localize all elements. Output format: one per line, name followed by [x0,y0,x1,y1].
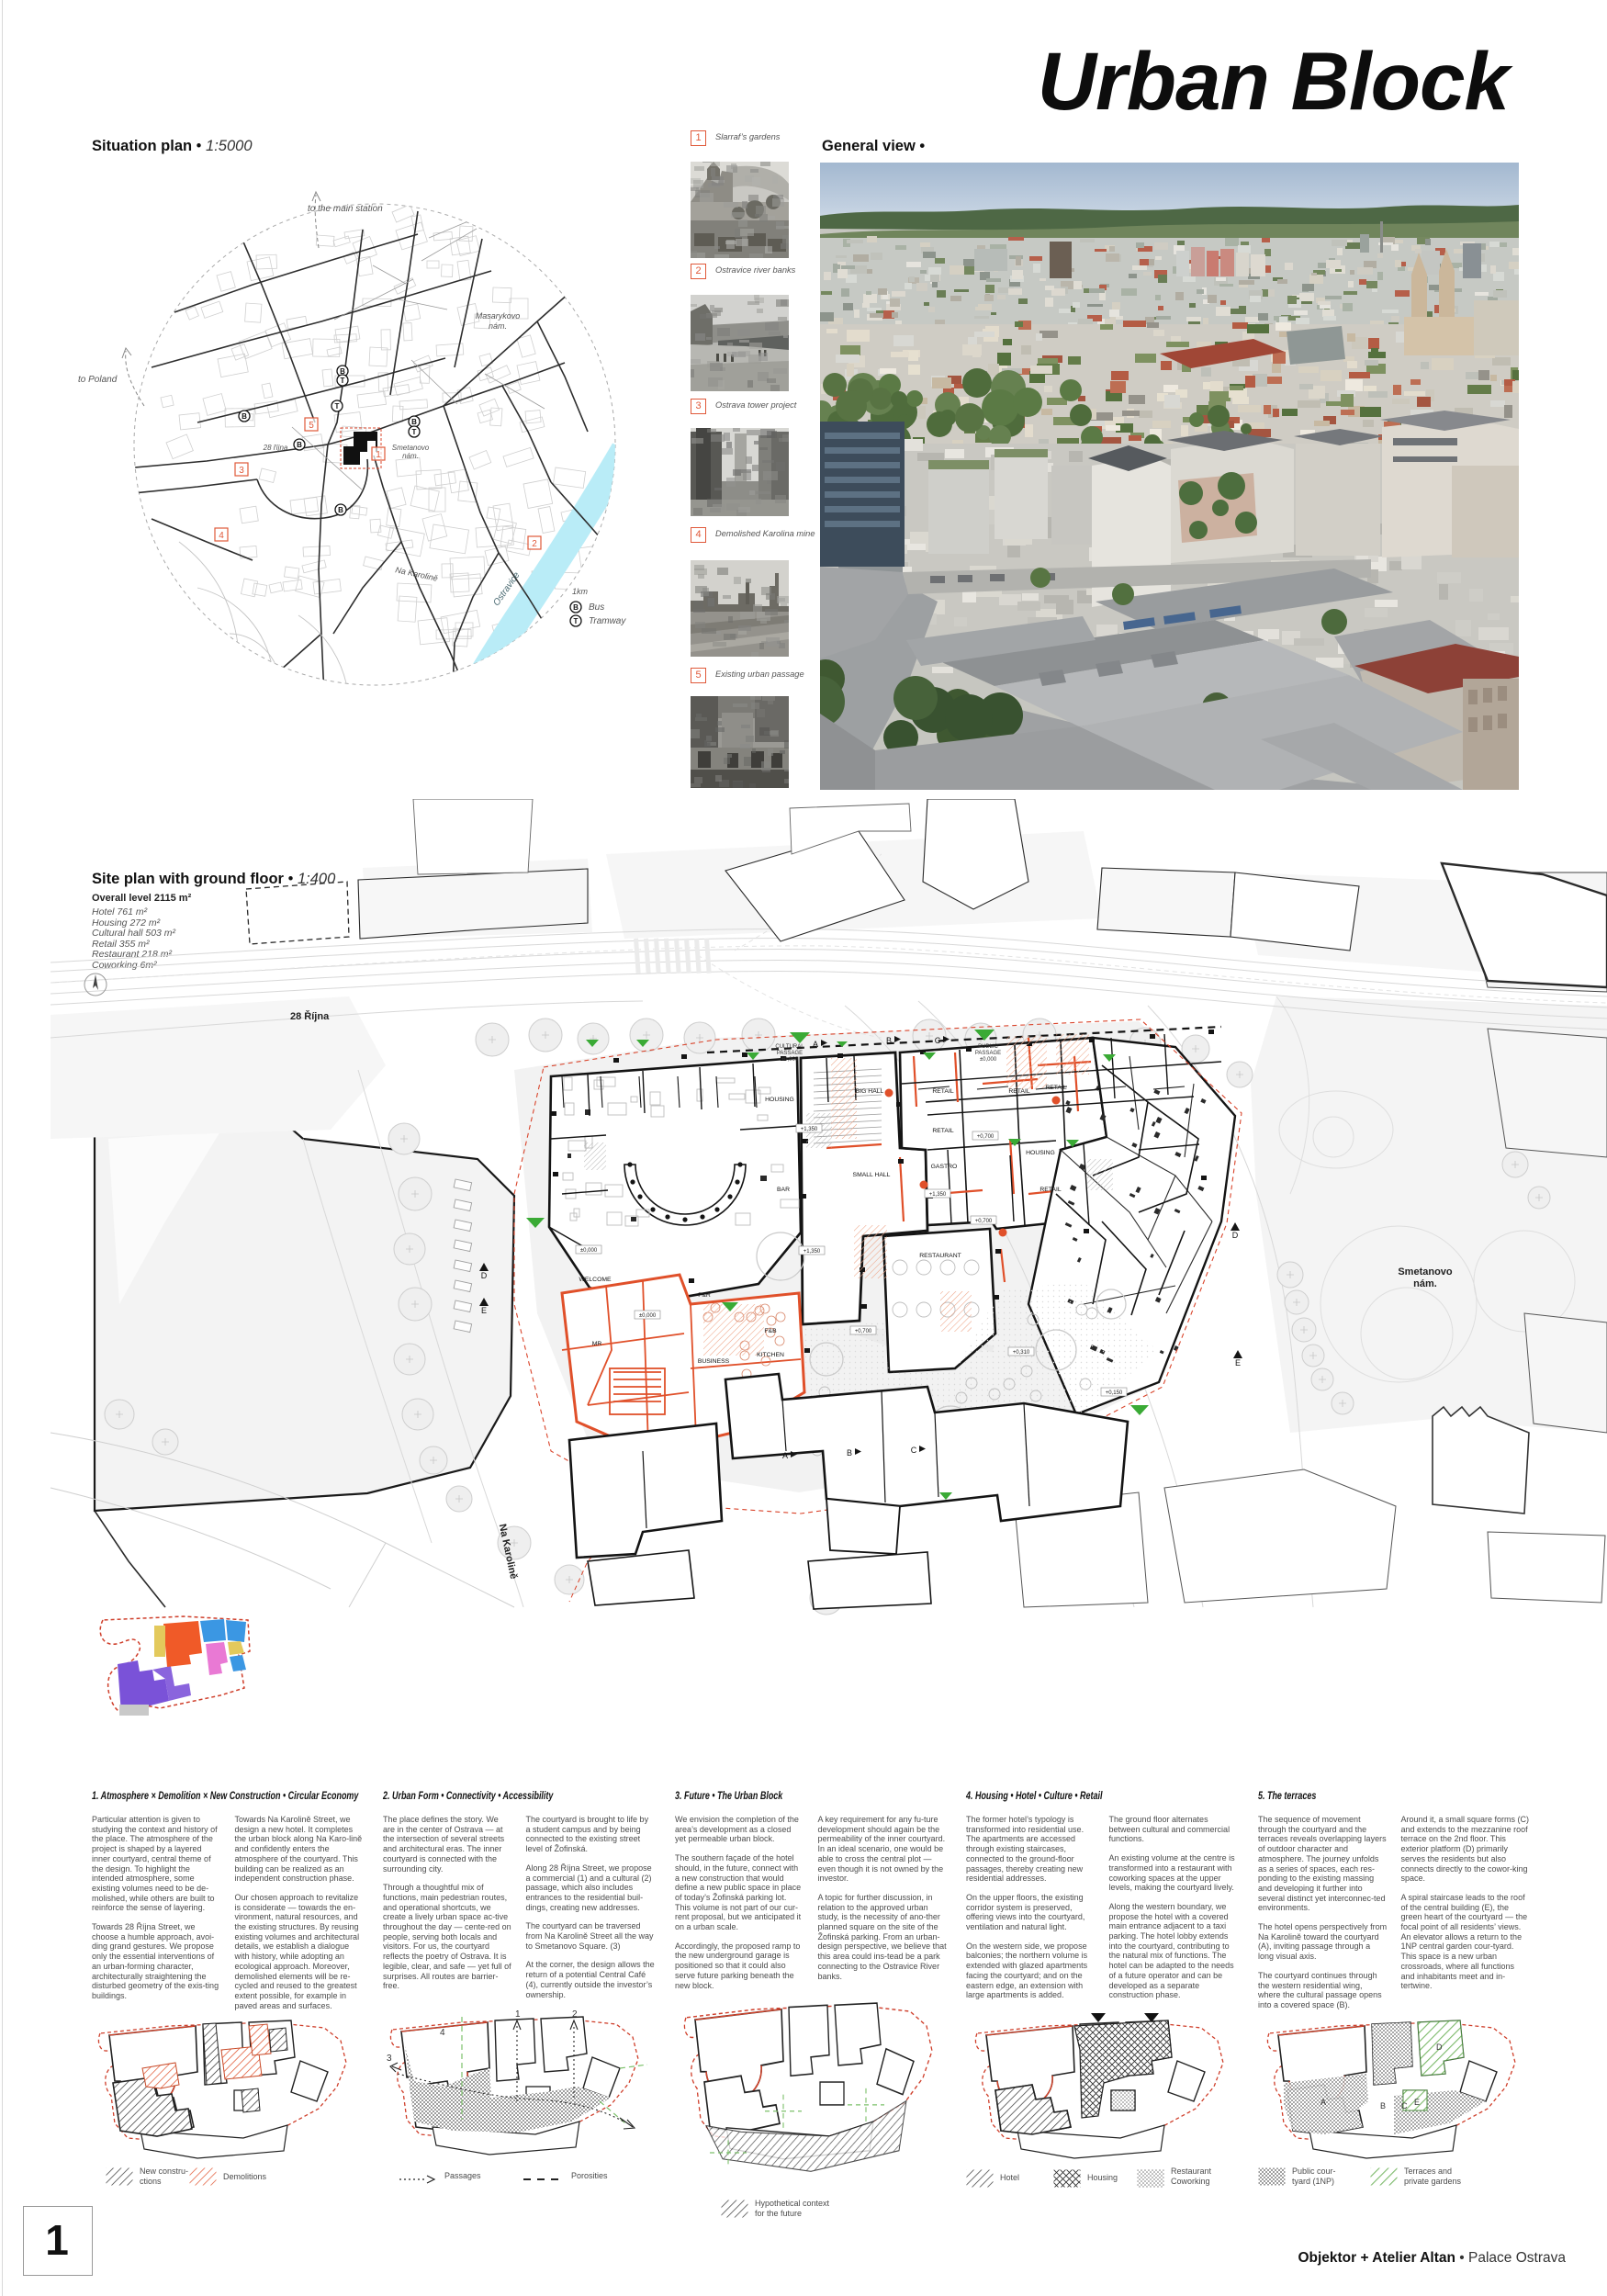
svg-text:F&R: F&R [698,1292,711,1299]
svg-text:C: C [911,1446,917,1455]
svg-text:nám.: nám. [489,321,507,331]
svg-text:+0,700: +0,700 [855,1329,872,1334]
svg-text:±0,000: ±0,000 [980,1057,997,1063]
svg-text:T: T [574,617,579,625]
svg-text:±0,000: ±0,000 [781,1057,799,1063]
svg-text:3: 3 [387,2054,392,2064]
svg-text:1: 1 [515,2009,521,2020]
svg-text:E: E [1414,2098,1420,2107]
svg-text:RETAIL: RETAIL [932,1088,954,1095]
svg-text:KITCHEN: KITCHEN [757,1352,784,1358]
svg-text:5: 5 [309,421,314,431]
svg-text:B: B [886,1036,892,1045]
svg-text:WELCOME: WELCOME [579,1277,612,1283]
svg-text:PASSAGE: PASSAGE [777,1051,803,1056]
svg-text:PASSAGE: PASSAGE [975,1051,1001,1056]
svg-text:GASTRO: GASTRO [931,1164,958,1170]
svg-text:B: B [573,603,579,612]
svg-text:BUSINESS: BUSINESS [698,1358,730,1365]
svg-text:T: T [335,402,340,411]
svg-text:+0,310: +0,310 [1013,1350,1030,1356]
svg-text:Tramway: Tramway [589,616,626,626]
svg-text:28 Října: 28 Října [290,1010,330,1022]
svg-text:±0,000: ±0,000 [580,1248,598,1254]
svg-text:B: B [411,418,417,426]
svg-text:Masarykovo: Masarykovo [476,311,521,321]
svg-text:2: 2 [532,539,537,549]
svg-text:to the main station: to the main station [308,204,383,214]
svg-text:HOUSING: HOUSING [765,1097,794,1103]
svg-text:A: A [782,1451,788,1460]
svg-text:C: C [1401,2101,1408,2110]
svg-text:MR: MR [592,1341,602,1347]
svg-text:±0,000: ±0,000 [639,1313,657,1319]
svg-text:RESTAURANT: RESTAURANT [919,1253,961,1259]
svg-text:nám.: nám. [402,452,419,460]
svg-text:4: 4 [440,2028,445,2038]
svg-text:B: B [1380,2101,1386,2110]
svg-text:+1,350: +1,350 [803,1249,821,1255]
svg-text:E: E [481,1306,487,1315]
svg-text:B: B [338,506,343,514]
svg-text:CULTURAL: CULTURAL [775,1044,804,1050]
svg-text:B: B [847,1448,852,1458]
svg-text:4: 4 [219,531,224,541]
svg-text:T: T [341,377,345,385]
svg-text:2: 2 [572,2009,578,2020]
svg-text:+0,700: +0,700 [977,1134,995,1140]
svg-text:BAR: BAR [777,1187,790,1193]
svg-text:RETAIL: RETAIL [1039,1187,1062,1193]
svg-text:SMALL HALL: SMALL HALL [853,1172,891,1178]
svg-text:B: B [297,441,302,449]
svg-text:3: 3 [239,466,244,476]
svg-text:C: C [935,1036,941,1045]
svg-text:to Poland: to Poland [78,375,118,385]
svg-text:F&B: F&B [764,1328,777,1334]
svg-text:B: B [242,412,247,421]
svg-text:Smetanovo: Smetanovo [392,444,430,452]
svg-text:BIG HALL: BIG HALL [856,1088,884,1095]
svg-text:D: D [481,1271,488,1280]
svg-text:RETAIL: RETAIL [932,1128,954,1134]
svg-text:D: D [1232,1231,1239,1240]
svg-text:A: A [1320,2098,1326,2107]
svg-text:1: 1 [376,450,381,460]
svg-text:+0,150: +0,150 [1106,1390,1123,1396]
svg-text:+1,350: +1,350 [929,1192,947,1198]
svg-text:nám.: nám. [1413,1278,1437,1289]
svg-text:PUBLIC: PUBLIC [978,1044,998,1050]
svg-text:+0,700: +0,700 [975,1219,993,1224]
svg-text:E: E [1235,1358,1241,1367]
svg-text:HOUSING: HOUSING [1026,1150,1055,1156]
svg-text:RETAIL: RETAIL [1008,1088,1030,1095]
svg-text:1km: 1km [572,587,589,596]
svg-text:+1,350: +1,350 [801,1127,818,1132]
svg-text:28 října: 28 října [263,444,288,452]
svg-text:Smetanovo: Smetanovo [1398,1266,1453,1277]
svg-text:Bus: Bus [589,602,604,613]
svg-text:A: A [813,1040,818,1049]
svg-text:T: T [412,428,417,436]
svg-text:RETAIL: RETAIL [1045,1085,1067,1091]
svg-text:D: D [1436,2043,1443,2052]
